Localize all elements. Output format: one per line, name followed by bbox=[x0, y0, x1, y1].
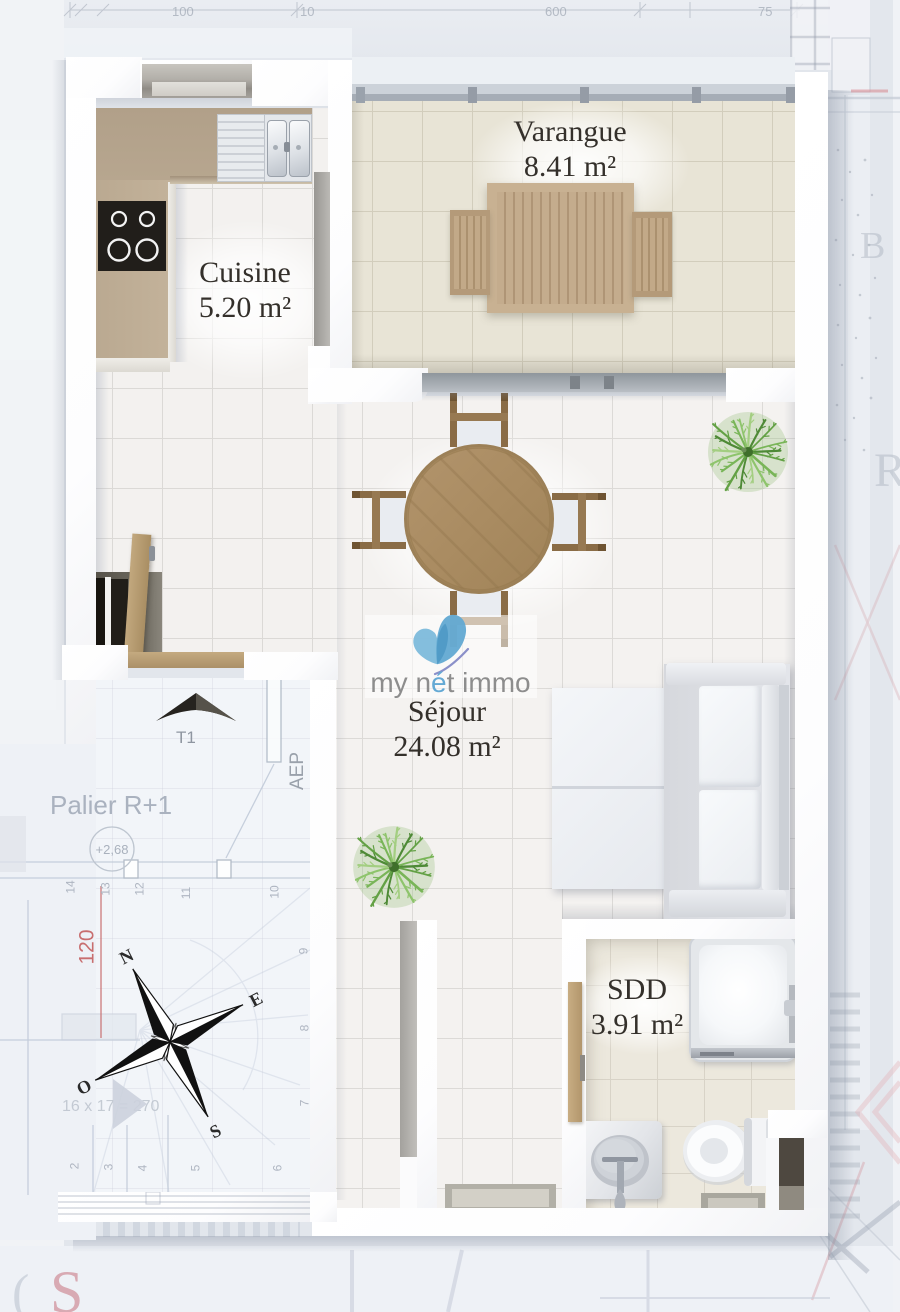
svg-text:S: S bbox=[50, 1259, 83, 1312]
svg-text:E: E bbox=[246, 988, 266, 1011]
svg-text:75: 75 bbox=[758, 4, 772, 19]
svg-text:N: N bbox=[116, 945, 137, 969]
svg-text:S: S bbox=[206, 1120, 224, 1142]
svg-text:10: 10 bbox=[300, 4, 314, 19]
svg-text:O: O bbox=[73, 1075, 95, 1099]
svg-text:B: B bbox=[860, 225, 885, 267]
svg-text:600: 600 bbox=[545, 4, 567, 19]
svg-text:R: R bbox=[874, 444, 900, 497]
svg-text:(: ( bbox=[12, 1265, 29, 1312]
svg-text:100: 100 bbox=[172, 4, 194, 19]
